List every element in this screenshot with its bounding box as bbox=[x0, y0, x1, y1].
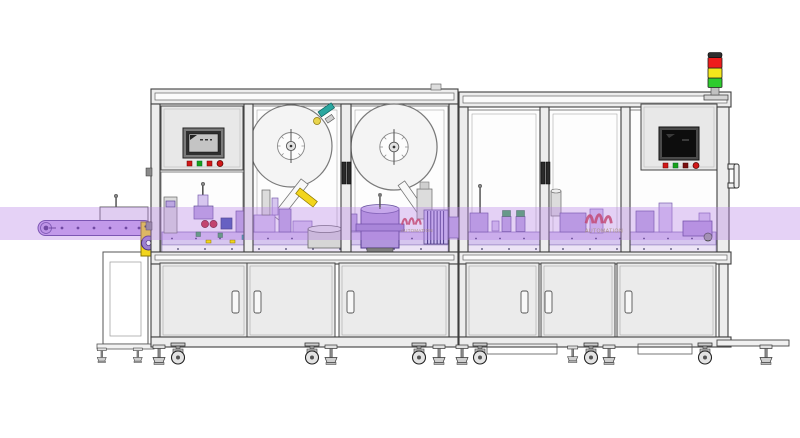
estop-button bbox=[693, 163, 699, 169]
hmi-screen bbox=[659, 127, 699, 160]
button-red bbox=[207, 161, 212, 166]
caster-wheel bbox=[698, 343, 712, 364]
highlight-band-overlay bbox=[0, 207, 800, 240]
door-handle bbox=[232, 291, 239, 313]
caster-wheel bbox=[473, 343, 487, 364]
button-dark bbox=[683, 163, 688, 168]
signal-green-light bbox=[708, 78, 722, 88]
tower-cap bbox=[708, 53, 722, 58]
estop-button bbox=[217, 161, 223, 167]
cabinet-door bbox=[339, 263, 449, 338]
roof-fitting bbox=[431, 84, 441, 90]
tower-base bbox=[704, 95, 728, 100]
leveling-foot bbox=[603, 345, 615, 365]
leveling-foot bbox=[325, 345, 337, 365]
base-cabinet-left bbox=[151, 263, 458, 347]
outrigger bbox=[717, 340, 789, 346]
door-handle bbox=[625, 291, 632, 313]
label-reel-1 bbox=[250, 105, 332, 187]
leveling-foot bbox=[433, 345, 445, 365]
leveling-foot bbox=[456, 345, 468, 365]
caster-wheel bbox=[584, 343, 598, 364]
stand-foot bbox=[97, 348, 106, 363]
door-handle bbox=[254, 291, 261, 313]
base-cabinet-right bbox=[459, 263, 789, 347]
hmi-screen bbox=[183, 128, 224, 158]
signal-red-light bbox=[708, 58, 722, 69]
door-handle bbox=[347, 291, 354, 313]
caster-wheel bbox=[305, 343, 319, 364]
machine-line-illustration: AUTOMATION AUTOMATION bbox=[0, 0, 800, 438]
sensor-pin bbox=[115, 197, 117, 207]
side-handle bbox=[728, 164, 739, 188]
caster-wheel bbox=[412, 343, 426, 364]
leveling-foot bbox=[568, 346, 578, 363]
machine-line-svg: AUTOMATION AUTOMATION bbox=[0, 0, 800, 438]
conveyor-stand bbox=[97, 252, 154, 363]
left-hmi-panel bbox=[161, 106, 243, 170]
button-green bbox=[197, 161, 202, 166]
leveling-foot bbox=[760, 345, 772, 365]
caster-wheel bbox=[171, 343, 185, 364]
signal-yellow-light bbox=[708, 68, 722, 78]
button-green bbox=[673, 163, 678, 168]
hinge bbox=[146, 168, 152, 176]
door-handle bbox=[521, 291, 528, 313]
button-red bbox=[187, 161, 192, 166]
leveling-foot bbox=[153, 345, 165, 365]
button-red bbox=[663, 163, 668, 168]
tower-pole bbox=[711, 87, 719, 95]
label-reel-2 bbox=[351, 104, 437, 190]
right-hmi-panel bbox=[641, 104, 717, 170]
stand-foot bbox=[133, 348, 142, 363]
door-handle bbox=[545, 291, 552, 313]
